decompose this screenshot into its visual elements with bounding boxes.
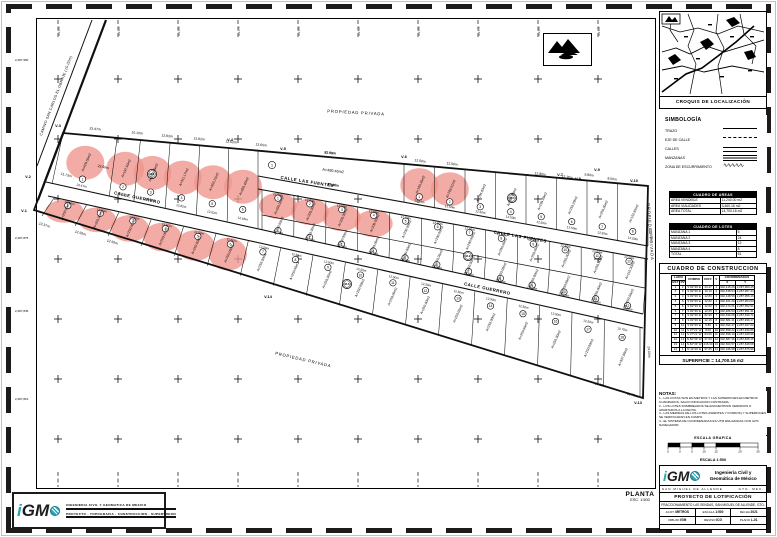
project-title: PROYECTO DE LOTIFICACIÓN (660, 493, 766, 502)
croquis-map (660, 12, 766, 96)
scale-text: ESCALA 1:500 (659, 458, 767, 462)
firm-header: iGM Ingeniería Civil y Geomática de Méxi… (660, 466, 766, 486)
footer-logo-box: iGM INGENIERIA CIVIL Y GEOMATICA DE MEXI… (12, 492, 166, 529)
titleblock-cell: ESCALA 1:500 (696, 509, 732, 516)
planta-title: PLANTA (618, 491, 662, 498)
zig-symbol-icon: ∿∿∿∿∿ (723, 163, 757, 170)
scale-section: ESCALA GRAFICA 50510152025 ESCALA 1:500 (659, 436, 767, 463)
line-symbol-icon (723, 128, 757, 136)
note-line: 4.- EL SISTEMA DE COORDENADAS ES UTM ENL… (659, 420, 767, 428)
legend-item: CALLES (665, 144, 767, 153)
planta-scale: ESC. 1:500 (618, 498, 662, 502)
titleblock-cell: DIBUJO IGM (660, 517, 696, 524)
titleblock-cell: REVISO ICG (696, 517, 732, 524)
notes-section: NOTAS: 1.- LAS COTAS SON EN METROS Y LAS… (659, 391, 767, 435)
titleblock-state: GTO. MEX. (739, 487, 764, 491)
firm-name: Ingeniería Civil y Geomática de México (700, 470, 766, 481)
plan-frame (36, 18, 656, 489)
svg-text:25: 25 (756, 450, 760, 454)
areas-table: CUADRO DE AREASAREA VENDIBLE11,240.00 m2… (669, 191, 757, 215)
svg-text:2,287,950: 2,287,950 (15, 58, 29, 62)
igm-logo-i: i (17, 501, 22, 521)
planta-caption: PLANTA ESC. 1:500 (618, 491, 662, 502)
dashed-border-left (6, 4, 11, 533)
titleblock-cells-row2: DIBUJO IGMREVISO ICGPLANO L-01 (660, 517, 766, 525)
construction-table: LADORUMBODIST.VCOORDENADASESTPVXY12S 82°… (671, 275, 755, 352)
svg-text:15: 15 (714, 450, 718, 454)
svg-text:2,287,810: 2,287,810 (15, 397, 29, 401)
titleblock-cell: ACOT. METROS (660, 509, 696, 516)
simbologia-title: SIMBOLOGÍA (665, 117, 767, 123)
double-symbol-icon (723, 147, 757, 152)
scale-bar: 50510152025 (660, 440, 766, 453)
legend-item: ZONA DE ESCURRIMIENTO∿∿∿∿∿ (665, 162, 767, 171)
superficie-total: SUPERFICIE = 14,700.16 m2 (660, 355, 766, 364)
svg-text:V-2: V-2 (25, 175, 31, 179)
hatch-symbol-icon (723, 154, 757, 161)
construction-table-title: CUADRO DE CONSTRUCCION (660, 264, 766, 274)
croquis-box: CROQUIS DE LOCALIZACIÓN (659, 11, 767, 109)
svg-text:2,287,875: 2,287,875 (15, 236, 29, 240)
croquis-title: CROQUIS DE LOCALIZACIÓN (660, 96, 766, 105)
svg-text:0: 0 (679, 450, 681, 454)
dash-symbol-icon (723, 137, 757, 145)
footer-firm-lines: INGENIERIA CIVIL Y GEOMATICA DE MEXICO P… (66, 501, 176, 520)
titleblock-location-row: SAN MIGUEL DE ALLENDE GTO. MEX. (660, 486, 766, 493)
titleblock: iGM Ingeniería Civil y Geomática de Méxi… (659, 465, 767, 530)
simbologia-section: SIMBOLOGÍA TRAZOEJE DE CALLECALLESMANZAN… (659, 115, 767, 187)
svg-text:10: 10 (702, 450, 706, 454)
construction-table-box: CUADRO DE CONSTRUCCION LADORUMBODIST.VCO… (659, 263, 767, 365)
legend-item: MANZANAS (665, 153, 767, 162)
globe-icon (50, 506, 60, 516)
titleblock-cell: FECHA 2021 (731, 509, 766, 516)
svg-text:20: 20 (738, 450, 742, 454)
igm-logo: iGM (660, 468, 700, 484)
lots-table: CUADRO DE LOTESMANZANA 16MANZANA 224MANZ… (669, 223, 757, 258)
project-subtitle: FRACCIONAMIENTO LAS SENDAS, SAN MIGUEL D… (660, 502, 766, 509)
legend-item: EJE DE CALLE (665, 135, 767, 144)
svg-text:5: 5 (691, 450, 693, 454)
titleblock-cell: PLANO L-01 (731, 517, 766, 524)
notes-lines: 1.- LAS COTAS SON EN METROS Y LAS SUPERF… (659, 397, 767, 428)
legend-list: TRAZOEJE DE CALLECALLESMANZANASZONA DE E… (659, 126, 767, 171)
svg-text:5: 5 (667, 450, 669, 454)
footer-line1: INGENIERIA CIVIL Y GEOMATICA DE MEXICO (66, 503, 176, 510)
legend-item: TRAZO (665, 126, 767, 135)
globe-icon (690, 471, 700, 481)
firm-name-line2: Geomática de México (700, 476, 766, 482)
drawing-sheet: 302,400302,425302,450302,475302,500302,5… (0, 0, 777, 537)
titleblock-city: SAN MIGUEL DE ALLENDE (662, 487, 723, 491)
svg-text:V-1: V-1 (21, 209, 27, 213)
footer-line2: PROYECTO · TOPOGRAFIA · CONSTRUCCION · S… (66, 512, 176, 519)
title-sidebar: CROQUIS DE LOCALIZACIÓN SIMBOLOGÍA TRAZO… (659, 9, 769, 530)
svg-text:2,287,845: 2,287,845 (15, 309, 29, 313)
igm-logo-footer: iGM (14, 501, 60, 521)
titleblock-cells-row1: ACOT. METROSESCALA 1:500FECHA 2021 (660, 509, 766, 517)
igm-logo-i: i (663, 468, 667, 484)
north-arrow-icon (543, 33, 592, 66)
dashed-border-top (6, 4, 771, 9)
